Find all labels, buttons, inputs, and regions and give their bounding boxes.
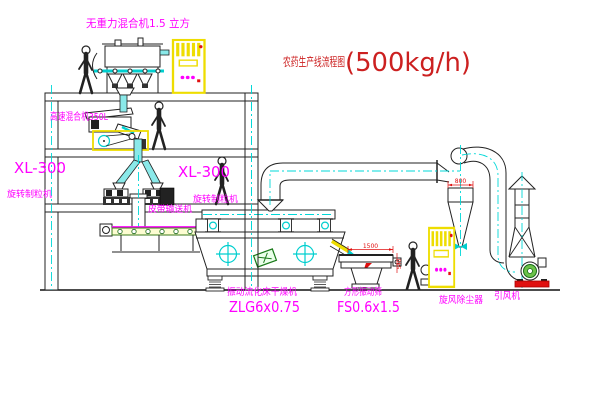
vibrating-sieve: 1500 540: [339, 243, 403, 288]
person-ground-floor: [406, 242, 419, 289]
cyclone-label: 旋风除尘器: [439, 294, 483, 306]
person-top-floor: [79, 46, 92, 93]
fan-label: 引风机: [494, 290, 520, 302]
exhaust-duct: [258, 160, 460, 205]
fluid-bed-dryer: [195, 200, 355, 291]
belt-conveyor: [100, 224, 201, 252]
belt-conveyor-label: 皮带输送机: [148, 203, 192, 215]
induced-draft-fan: [515, 258, 549, 287]
cyclone-diameter-dim: 800: [455, 178, 467, 185]
high-speed-mixer-label: 高速混合机350L: [50, 110, 108, 123]
granulator-right-label: 旋转制粒机: [193, 193, 238, 205]
control-cabinet-lower: [429, 228, 454, 287]
sieve-height-dim: 540: [397, 258, 403, 269]
flow-diagram-svg: 800: [0, 0, 600, 403]
granulator-left: [103, 183, 130, 205]
granulator-left-label: 旋转制粒机: [7, 188, 52, 200]
control-cabinet-upper: [173, 40, 205, 93]
sieve-length-dim: 1500: [363, 243, 378, 250]
dryer-model: ZLG6x0.75: [229, 298, 300, 316]
sieve-label: 方形振动筛: [344, 286, 382, 298]
dryer-label: 振动流化床干燥机: [227, 286, 297, 298]
pesticide-production-line-drawing: 800: [0, 0, 600, 403]
title-text: 农药生产线流程图: [283, 54, 345, 69]
gravity-mixer-label: 无重力混合机1.5 立方: [86, 16, 190, 30]
title-capacity: (500kg/h): [345, 48, 471, 78]
granulator-right-model: XL-300: [178, 163, 230, 181]
sieve-model: FS0.6x1.5: [337, 298, 400, 316]
granulator-left-model: XL-300: [14, 159, 66, 177]
gravity-free-mixer: [93, 38, 170, 95]
person-second-floor: [152, 102, 165, 149]
